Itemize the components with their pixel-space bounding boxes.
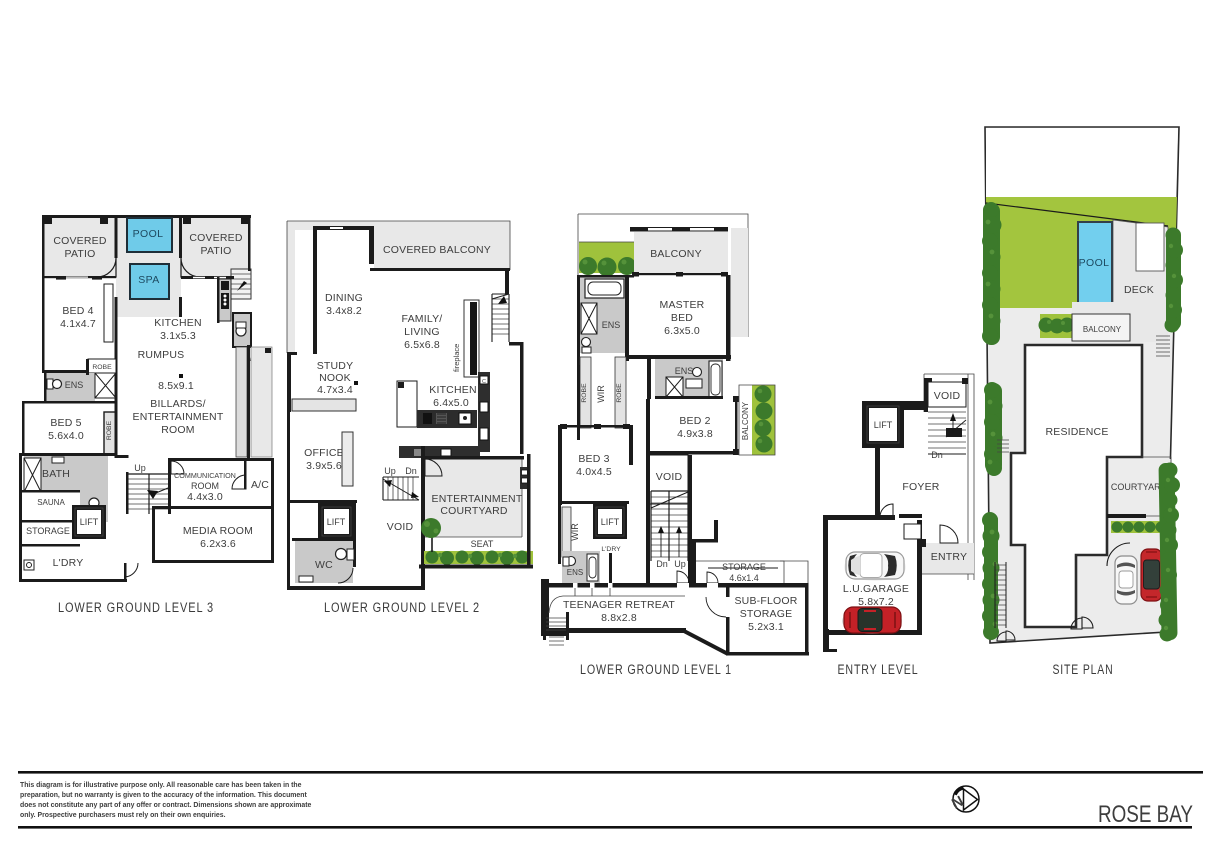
svg-text:does not constitute any part o: does not constitute any part of any offe… bbox=[20, 802, 312, 809]
svg-text:ENS: ENS bbox=[602, 320, 621, 330]
svg-text:preparation, but no warranty i: preparation, but no warranty is given to… bbox=[20, 792, 307, 799]
svg-text:Dn: Dn bbox=[931, 450, 943, 460]
svg-text:LIFT: LIFT bbox=[80, 517, 99, 527]
svg-text:LIFT: LIFT bbox=[327, 517, 346, 527]
svg-text:ROOM: ROOM bbox=[161, 424, 194, 436]
svg-text:6.4x5.0: 6.4x5.0 bbox=[433, 397, 469, 409]
svg-text:WIR: WIR bbox=[596, 385, 606, 403]
svg-text:ENTERTAINMENT: ENTERTAINMENT bbox=[432, 493, 523, 505]
svg-text:Up: Up bbox=[134, 463, 146, 473]
svg-text:LIFT: LIFT bbox=[874, 420, 893, 430]
svg-text:NOOK: NOOK bbox=[319, 372, 351, 384]
svg-text:RESIDENCE: RESIDENCE bbox=[1045, 426, 1108, 438]
svg-text:6.5x6.8: 6.5x6.8 bbox=[404, 339, 440, 351]
svg-text:4.0x4.5: 4.0x4.5 bbox=[576, 466, 612, 478]
svg-text:L'DRY: L'DRY bbox=[53, 557, 84, 569]
svg-text:4.4x3.0: 4.4x3.0 bbox=[187, 491, 223, 503]
svg-text:Up: Up bbox=[674, 559, 686, 569]
svg-text:BILLARDS/: BILLARDS/ bbox=[150, 398, 206, 410]
svg-text:4.7x3.4: 4.7x3.4 bbox=[317, 384, 353, 396]
svg-text:SUB-FLOOR: SUB-FLOOR bbox=[734, 595, 797, 607]
svg-text:PATIO: PATIO bbox=[65, 248, 96, 260]
svg-text:L'DRY: L'DRY bbox=[601, 546, 621, 553]
svg-text:BALCONY: BALCONY bbox=[741, 401, 750, 440]
svg-text:KITCHEN: KITCHEN bbox=[154, 317, 202, 329]
svg-text:4.6x1.4: 4.6x1.4 bbox=[729, 573, 759, 583]
svg-text:TEENAGER RETREAT: TEENAGER RETREAT bbox=[563, 599, 675, 611]
svg-text:Dn: Dn bbox=[405, 466, 417, 476]
svg-text:ENTERTAINMENT: ENTERTAINMENT bbox=[133, 411, 224, 423]
svg-text:ENTRY: ENTRY bbox=[931, 551, 967, 563]
svg-text:STORAGE: STORAGE bbox=[740, 608, 793, 620]
svg-text:BALCONY: BALCONY bbox=[650, 248, 702, 260]
svg-text:VOID: VOID bbox=[934, 390, 961, 402]
svg-text:POOL: POOL bbox=[1079, 257, 1110, 269]
svg-text:Up: Up bbox=[384, 466, 396, 476]
svg-text:only. Prospective purchasers m: only. Prospective purchasers must rely o… bbox=[20, 812, 226, 819]
svg-text:5.6x4.0: 5.6x4.0 bbox=[48, 430, 84, 442]
svg-text:COMMUNICATION: COMMUNICATION bbox=[174, 471, 236, 480]
svg-text:This diagram is for illustrati: This diagram is for illustrative purpose… bbox=[20, 782, 302, 789]
svg-text:ROBE: ROBE bbox=[92, 364, 112, 371]
svg-text:LIVING: LIVING bbox=[404, 326, 440, 338]
svg-text:DINING: DINING bbox=[325, 292, 363, 304]
svg-text:5.2x3.1: 5.2x3.1 bbox=[748, 621, 784, 633]
svg-text:ROBE: ROBE bbox=[581, 383, 588, 403]
svg-text:COVERED: COVERED bbox=[53, 235, 107, 247]
svg-text:DECK: DECK bbox=[1124, 284, 1154, 296]
svg-text:ROOM: ROOM bbox=[191, 481, 219, 491]
svg-text:3.4x8.2: 3.4x8.2 bbox=[326, 305, 362, 317]
svg-text:COURTYARD: COURTYARD bbox=[440, 505, 508, 517]
svg-text:Dn: Dn bbox=[656, 559, 668, 569]
svg-text:BATH: BATH bbox=[42, 468, 70, 480]
svg-text:3.9x5.6: 3.9x5.6 bbox=[306, 460, 342, 472]
svg-text:ROBE: ROBE bbox=[616, 383, 623, 403]
svg-text:6.2x3.6: 6.2x3.6 bbox=[200, 538, 236, 550]
svg-text:4.1x4.7: 4.1x4.7 bbox=[60, 318, 96, 330]
svg-text:COVERED: COVERED bbox=[189, 232, 243, 244]
svg-text:L.U.GARAGE: L.U.GARAGE bbox=[843, 583, 909, 595]
svg-text:STORAGE: STORAGE bbox=[722, 562, 766, 572]
svg-text:BED 4: BED 4 bbox=[62, 305, 93, 317]
svg-text:4.9x3.8: 4.9x3.8 bbox=[677, 428, 713, 440]
svg-text:LOWER GROUND LEVEL 3: LOWER GROUND LEVEL 3 bbox=[58, 600, 214, 615]
svg-text:SAUNA: SAUNA bbox=[37, 498, 65, 507]
svg-text:fireplace: fireplace bbox=[452, 344, 461, 372]
svg-text:A/C: A/C bbox=[251, 479, 269, 491]
svg-text:STUDY: STUDY bbox=[317, 360, 354, 372]
svg-text:3.1x5.3: 3.1x5.3 bbox=[160, 330, 196, 342]
svg-text:SITE PLAN: SITE PLAN bbox=[1053, 662, 1114, 677]
svg-text:OFFICE: OFFICE bbox=[304, 447, 344, 459]
svg-text:MEDIA ROOM: MEDIA ROOM bbox=[183, 525, 253, 537]
svg-text:WIR: WIR bbox=[570, 523, 580, 541]
svg-text:5.8x7.2: 5.8x7.2 bbox=[858, 596, 894, 608]
svg-text:BED: BED bbox=[671, 312, 693, 324]
svg-text:8.5x9.1: 8.5x9.1 bbox=[158, 380, 194, 392]
svg-text:LIFT: LIFT bbox=[601, 517, 620, 527]
svg-text:POOL: POOL bbox=[133, 228, 164, 240]
svg-text:FOYER: FOYER bbox=[902, 481, 939, 493]
svg-text:COVERED BALCONY: COVERED BALCONY bbox=[383, 244, 491, 256]
svg-text:VOID: VOID bbox=[387, 521, 414, 533]
svg-text:6.3x5.0: 6.3x5.0 bbox=[664, 325, 700, 337]
svg-text:KITCHEN: KITCHEN bbox=[429, 384, 477, 396]
svg-text:ENTRY LEVEL: ENTRY LEVEL bbox=[838, 662, 919, 677]
svg-text:C: C bbox=[482, 379, 486, 385]
svg-text:BED 2: BED 2 bbox=[679, 415, 710, 427]
svg-text:LOWER GROUND LEVEL 1: LOWER GROUND LEVEL 1 bbox=[580, 662, 732, 677]
svg-text:STORAGE: STORAGE bbox=[26, 526, 70, 536]
svg-text:ENS: ENS bbox=[675, 366, 694, 376]
svg-text:WC: WC bbox=[315, 559, 333, 571]
svg-text:MASTER: MASTER bbox=[660, 299, 705, 311]
svg-text:ROSE BAY: ROSE BAY bbox=[1098, 801, 1193, 828]
svg-text:VOID: VOID bbox=[656, 471, 683, 483]
svg-text:FAMILY/: FAMILY/ bbox=[402, 313, 443, 325]
svg-text:BED 5: BED 5 bbox=[50, 417, 81, 429]
svg-text:RUMPUS: RUMPUS bbox=[138, 349, 185, 361]
svg-text:PATIO: PATIO bbox=[201, 245, 232, 257]
svg-text:8.8x2.8: 8.8x2.8 bbox=[601, 612, 637, 624]
svg-text:ENS: ENS bbox=[65, 380, 84, 390]
svg-text:ROBE: ROBE bbox=[106, 420, 113, 440]
svg-text:ENS: ENS bbox=[567, 568, 583, 577]
svg-text:LOWER GROUND LEVEL 2: LOWER GROUND LEVEL 2 bbox=[324, 600, 480, 615]
svg-text:SPA: SPA bbox=[138, 274, 159, 286]
svg-text:BALCONY: BALCONY bbox=[1083, 325, 1122, 334]
svg-text:BED 3: BED 3 bbox=[578, 453, 609, 465]
svg-text:SEAT: SEAT bbox=[471, 539, 494, 549]
